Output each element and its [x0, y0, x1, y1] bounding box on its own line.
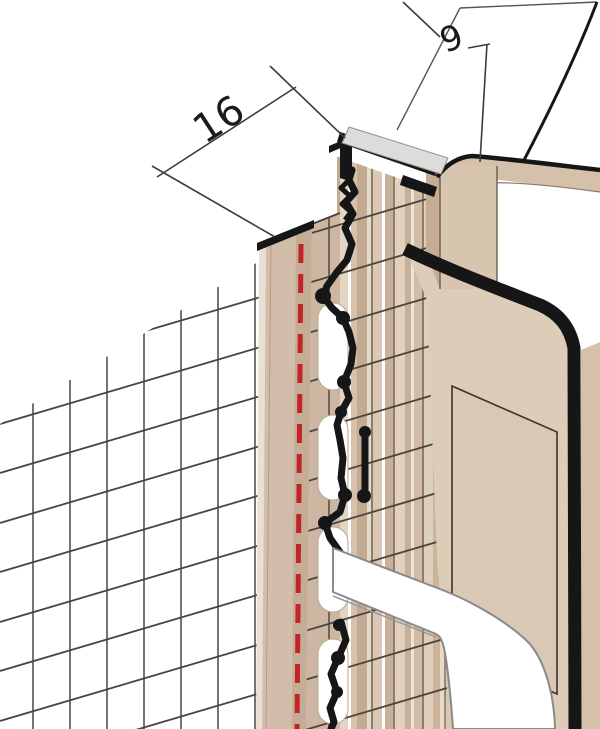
technical-diagram: 16 9 — [0, 0, 600, 729]
dim9-dimension-line-left — [403, 2, 440, 37]
profile-cross-section-drawing: 16 9 — [0, 0, 600, 729]
dim16-extension-line-left — [152, 166, 275, 237]
white-protective-strip-top — [397, 2, 597, 164]
frame-right-sliver — [581, 342, 600, 729]
dim16-label: 16 — [185, 87, 253, 153]
plaster-flange — [256, 220, 314, 729]
dim16-extension-line-right — [270, 66, 345, 138]
dimension-16 — [152, 66, 345, 237]
